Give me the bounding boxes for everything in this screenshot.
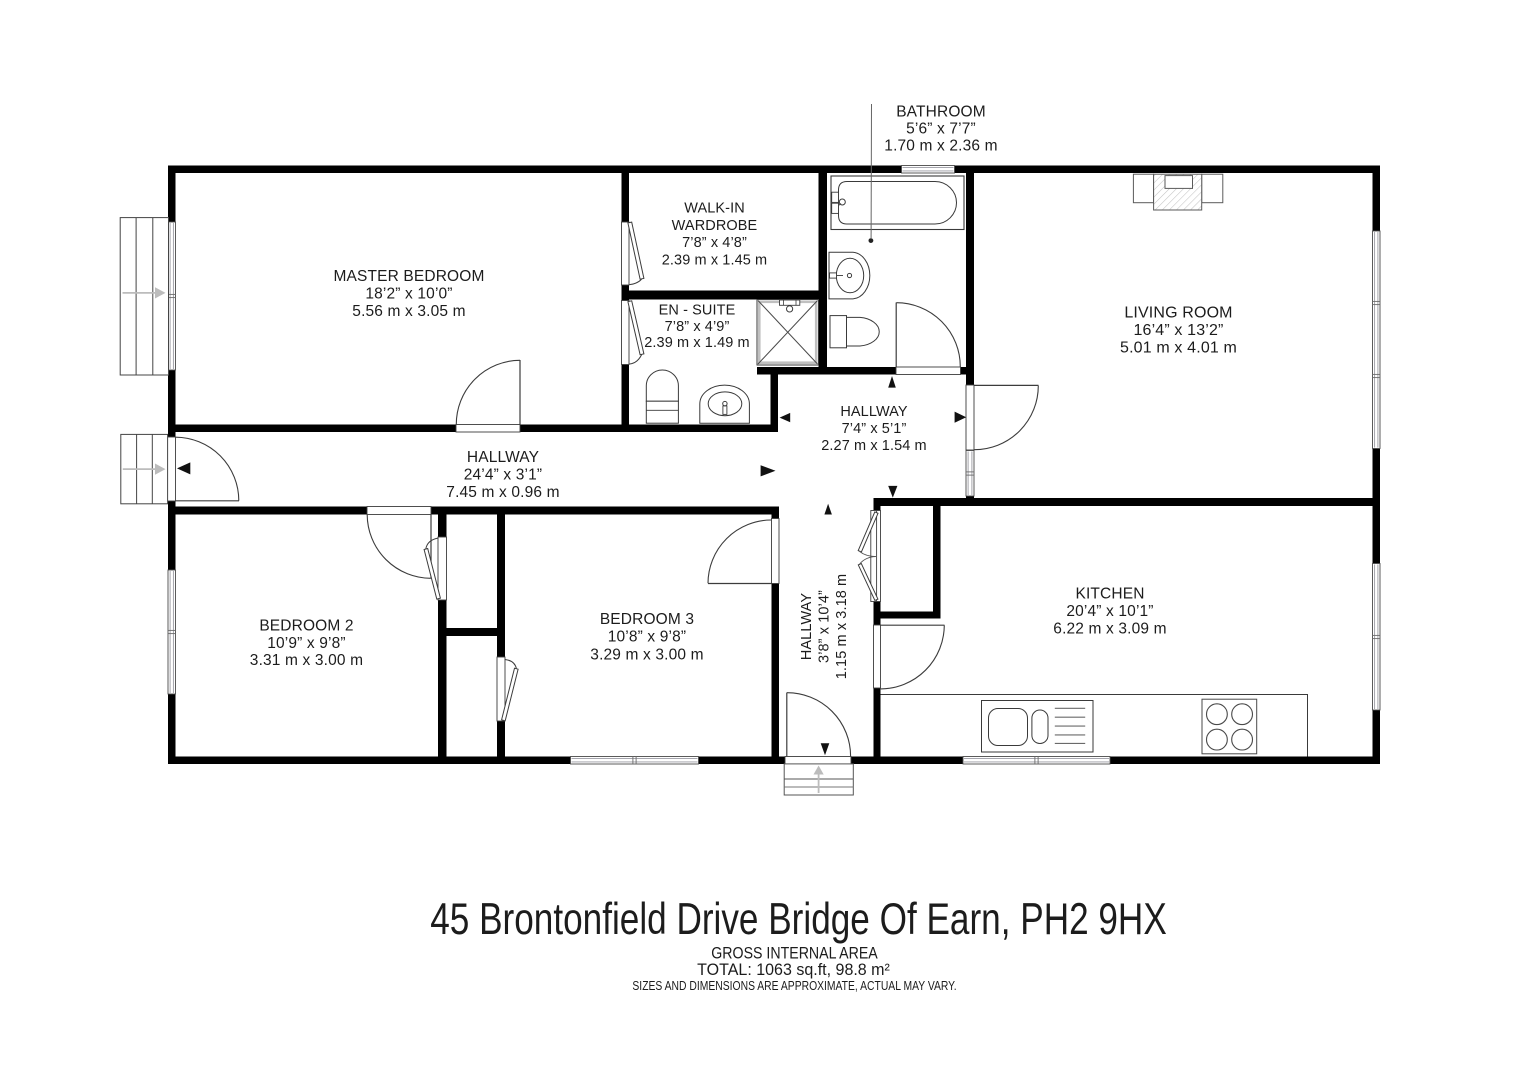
svg-text:10’9” x 9’8”: 10’9” x 9’8” xyxy=(267,635,345,652)
svg-text:3.31 m x 3.00 m: 3.31 m x 3.00 m xyxy=(250,652,363,669)
svg-text:BEDROOM 3: BEDROOM 3 xyxy=(600,611,694,628)
svg-text:2.39 m x 1.45 m: 2.39 m x 1.45 m xyxy=(662,252,767,268)
svg-text:MASTER BEDROOM: MASTER BEDROOM xyxy=(333,268,484,285)
svg-text:7’4” x 5’1”: 7’4” x 5’1” xyxy=(842,421,907,437)
svg-text:3.29 m x 3.00 m: 3.29 m x 3.00 m xyxy=(590,647,703,664)
svg-text:LIVING ROOM: LIVING ROOM xyxy=(1124,305,1232,322)
svg-text:BATHROOM: BATHROOM xyxy=(896,104,986,121)
svg-text:2.27 m x 1.54 m: 2.27 m x 1.54 m xyxy=(821,438,926,454)
svg-text:16’4” x 13’2”: 16’4” x 13’2” xyxy=(1134,322,1224,339)
svg-text:HALLWAY: HALLWAY xyxy=(840,404,908,420)
svg-text:WALK-IN: WALK-IN xyxy=(684,201,745,217)
svg-text:7’8” x 4’9”: 7’8” x 4’9” xyxy=(665,319,730,335)
svg-text:KITCHEN: KITCHEN xyxy=(1075,585,1144,602)
svg-text:1.70 m x 2.36 m: 1.70 m x 2.36 m xyxy=(884,138,997,155)
svg-text:5.01 m x 4.01 m: 5.01 m x 4.01 m xyxy=(1120,340,1237,357)
svg-text:10’8” x 9’8”: 10’8” x 9’8” xyxy=(608,629,686,646)
svg-text:20’4” x 10’1”: 20’4” x 10’1” xyxy=(1066,603,1153,620)
svg-text:WARDROBE: WARDROBE xyxy=(672,218,758,234)
svg-text:BEDROOM 2: BEDROOM 2 xyxy=(259,618,353,635)
svg-text:HALLWAY: HALLWAY xyxy=(799,593,815,661)
svg-text:6.22 m x 3.09 m: 6.22 m x 3.09 m xyxy=(1053,621,1166,638)
svg-text:3’8” x 10’4”: 3’8” x 10’4” xyxy=(816,590,832,663)
svg-text:18’2” x 10’0”: 18’2” x 10’0” xyxy=(365,285,452,302)
svg-text:1.15 m x 3.18 m: 1.15 m x 3.18 m xyxy=(834,574,850,679)
svg-text:5’6” x 7’7”: 5’6” x 7’7” xyxy=(906,121,976,138)
svg-text:SIZES AND DIMENSIONS ARE APPRO: SIZES AND DIMENSIONS ARE APPROXIMATE, AC… xyxy=(632,978,956,994)
svg-text:2.39 m x 1.49 m: 2.39 m x 1.49 m xyxy=(644,335,749,351)
svg-text:5.56 m x 3.05 m: 5.56 m x 3.05 m xyxy=(352,303,465,320)
svg-text:EN - SUITE: EN - SUITE xyxy=(659,303,736,319)
svg-text:HALLWAY: HALLWAY xyxy=(467,449,539,466)
svg-text:TOTAL: 1063 sq.ft, 98.8 m²: TOTAL: 1063 sq.ft, 98.8 m² xyxy=(697,961,890,979)
svg-text:7’8” x 4’8”: 7’8” x 4’8” xyxy=(682,235,747,251)
svg-text:7.45 m x 0.96 m: 7.45 m x 0.96 m xyxy=(446,484,559,501)
svg-text:24’4” x 3’1”: 24’4” x 3’1” xyxy=(464,467,542,484)
svg-text:45 Brontonfield Drive Bridge O: 45 Brontonfield Drive Bridge Of Earn, PH… xyxy=(430,895,1167,944)
